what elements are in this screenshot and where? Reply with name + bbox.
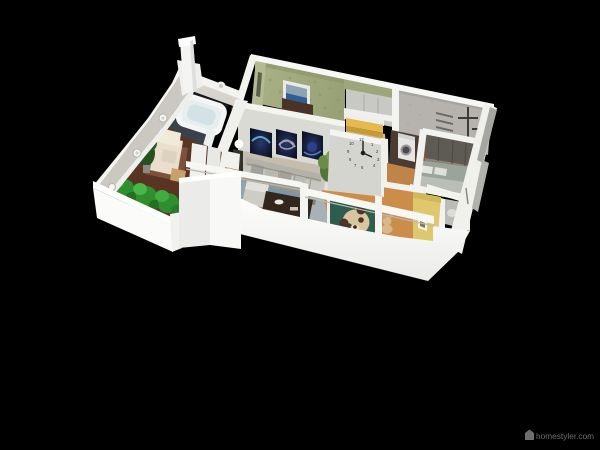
svg-text:12: 12 — [359, 137, 364, 142]
svg-text:10: 10 — [349, 141, 354, 146]
svg-text:homestyler.com: homestyler.com — [536, 431, 594, 441]
